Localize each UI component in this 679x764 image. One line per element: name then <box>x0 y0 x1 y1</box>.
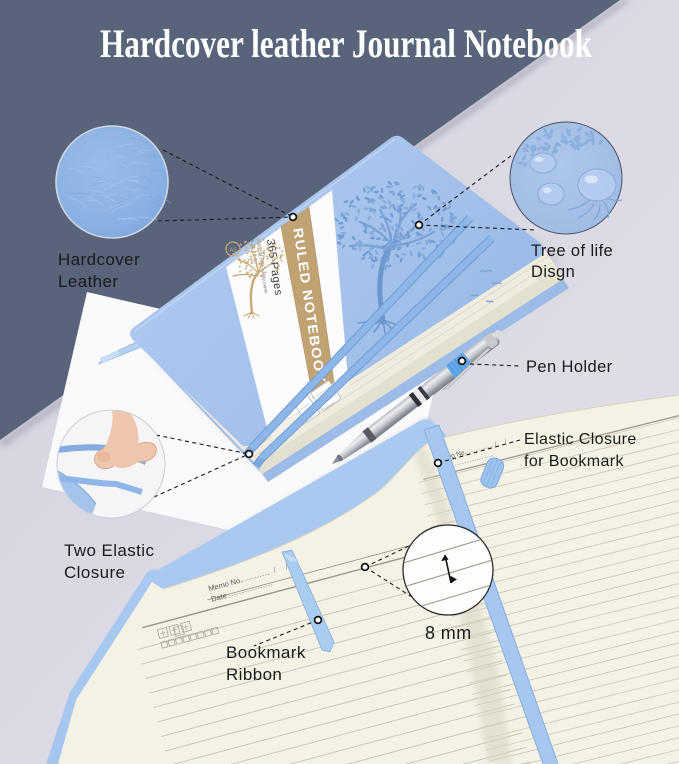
svg-text:Disgn: Disgn <box>531 263 575 281</box>
svg-text:for Bookmark: for Bookmark <box>524 453 625 470</box>
svg-text:Pen Holder: Pen Holder <box>526 358 613 376</box>
svg-text:Hardcover leather Journal Note: Hardcover leather Journal Notebook <box>100 21 593 66</box>
svg-text:Elastic Closure: Elastic Closure <box>524 431 637 448</box>
svg-text:Closure: Closure <box>64 563 125 582</box>
svg-text:Two Elastic: Two Elastic <box>64 541 154 560</box>
svg-text:Leather: Leather <box>58 272 118 291</box>
svg-text:Ribbon: Ribbon <box>226 665 282 684</box>
svg-text:Tree of life: Tree of life <box>531 242 613 260</box>
svg-text:8 mm: 8 mm <box>425 623 472 643</box>
svg-text:Hardcover: Hardcover <box>58 250 140 269</box>
svg-text:Bookmark: Bookmark <box>226 643 306 662</box>
